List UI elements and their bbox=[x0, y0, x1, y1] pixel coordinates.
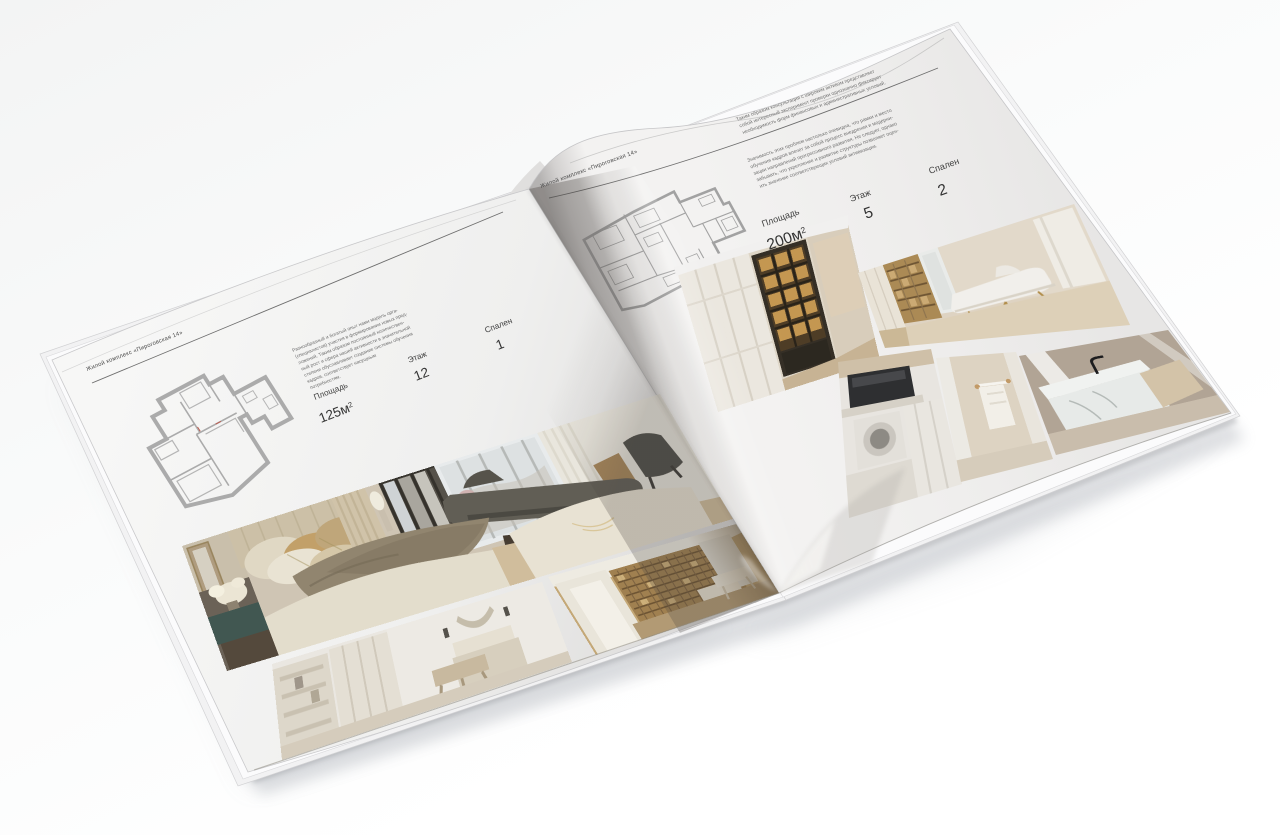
svg-text:200м2: 200м2 bbox=[765, 224, 810, 254]
